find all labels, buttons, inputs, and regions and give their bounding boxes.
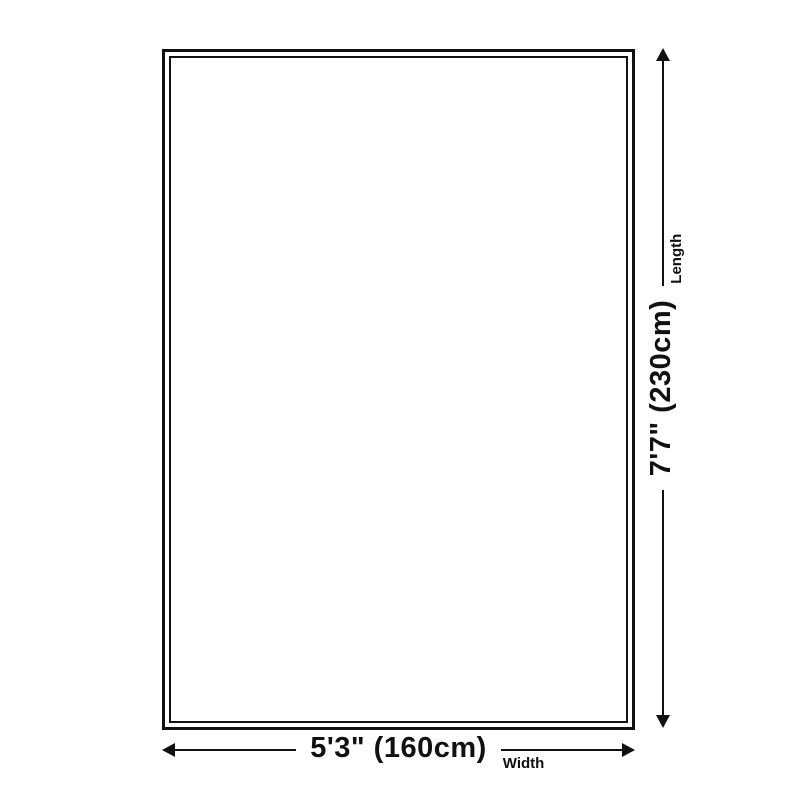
arrow-down-icon bbox=[656, 715, 670, 728]
width-arrow-line-left bbox=[175, 749, 296, 752]
width-value: 5'3" (160cm) bbox=[310, 734, 487, 766]
length-label: Length bbox=[669, 234, 684, 284]
arrow-up-icon bbox=[656, 48, 670, 61]
length-dimension-arrow: 7'7" (230cm) Length bbox=[641, 48, 685, 728]
arrow-left-icon bbox=[162, 743, 175, 757]
arrow-right-icon bbox=[622, 743, 635, 757]
width-label: Width bbox=[503, 756, 545, 771]
length-arrow-line-upper: Length bbox=[662, 61, 665, 286]
length-arrow-line-lower bbox=[662, 490, 665, 715]
width-dimension-arrow: 5'3" (160cm) Width bbox=[162, 728, 635, 772]
rug-outline bbox=[162, 49, 635, 730]
width-arrow-line-right: Width bbox=[501, 749, 622, 752]
rug-dimension-diagram: 5'3" (160cm) Width 7'7" (230cm) Length bbox=[0, 0, 800, 800]
length-value: 7'7" (230cm) bbox=[647, 300, 679, 477]
rug-inner-border bbox=[169, 56, 628, 723]
